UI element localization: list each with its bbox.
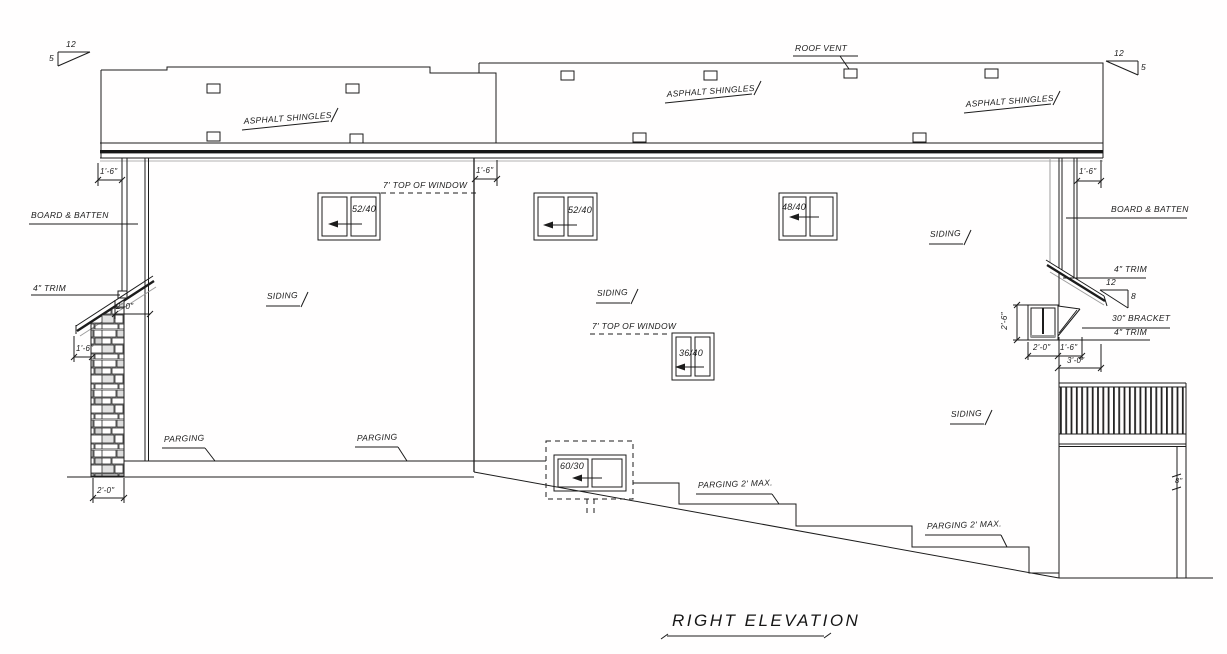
label-underlines [242,81,1060,639]
slope-marker-top-left [58,52,90,66]
parging-label-2: PARGING [357,433,398,443]
parging-label-1: PARGING [164,434,205,444]
window-52-40-middle [534,193,597,240]
slope-marker-bay [1100,290,1128,308]
window-w1-size: 52/40 [352,205,376,214]
siding-left-label: SIDING [267,291,298,301]
slope-marker-top-right [1106,61,1138,75]
siding-right-lower-label: SIDING [951,409,982,419]
dim-garage-jamb: 8" [1175,477,1182,485]
bracket-label: 30" BRACKET [1112,314,1170,323]
parging-leaders [162,447,1007,547]
window-52-40-left [318,193,380,240]
siding-middle-label: SIDING [597,288,628,298]
window-w5-size: 60/30 [560,462,584,471]
trim-left-label: 4" TRIM [33,284,66,293]
slope-bay-rise: 8 [1131,292,1136,301]
slope-right-rise: 5 [1141,63,1146,72]
dim-overhang-middle: 1'-6" [476,167,493,175]
slope-right-run: 12 [1114,49,1124,58]
railing [1059,383,1186,578]
window-w3-size: 48/40 [782,203,806,212]
dim-bay-height: 2'-6" [1001,301,1009,341]
top-of-window-upper-note: 7' TOP OF WINDOW [383,181,467,190]
dim-bay-total: 3'-0" [1067,357,1084,365]
window-48-40 [779,193,837,240]
roof-vent-label: ROOF VENT [795,44,847,53]
drawing-title: RIGHT ELEVATION [672,612,860,629]
dimension-lines [71,160,1181,503]
dim-porch-depth: 2'-0" [116,303,133,311]
dim-overhang-left: 1'-6" [100,168,117,176]
roof-outline [100,63,1103,161]
slope-bay-run: 12 [1106,278,1116,287]
trim-right-upper-label: 4" TRIM [1114,265,1147,274]
slope-left-run: 12 [66,40,76,49]
dim-overhang-right: 1'-6" [1079,168,1096,176]
siding-right-upper-label: SIDING [930,229,961,239]
slope-left-rise: 5 [49,54,54,63]
board-batten-right-label: BOARD & BATTEN [1111,205,1189,214]
elevation-sheet: RIGHT ELEVATION 12 5 12 5 12 8 ROOF VENT… [0,0,1227,654]
window-60-30-basement [546,441,633,514]
dim-pillar-width: 2'-0" [97,487,114,495]
window-w4-size: 36/40 [679,349,703,358]
board-batten-left-label: BOARD & BATTEN [31,211,109,220]
grade-lines [67,158,1213,578]
dim-bay-width: 2'-0" [1033,344,1050,352]
dim-bracket-depth: 1'-6" [1060,344,1077,352]
roof-vents [207,69,998,143]
top-of-window-lower-note: 7' TOP OF WINDOW [592,322,676,331]
stone-pillar [91,300,124,476]
dim-pillar-offset: 1'-6" [76,345,93,353]
window-w2-size: 52/40 [568,206,592,215]
trim-right-lower-label: 4" TRIM [1114,328,1147,337]
